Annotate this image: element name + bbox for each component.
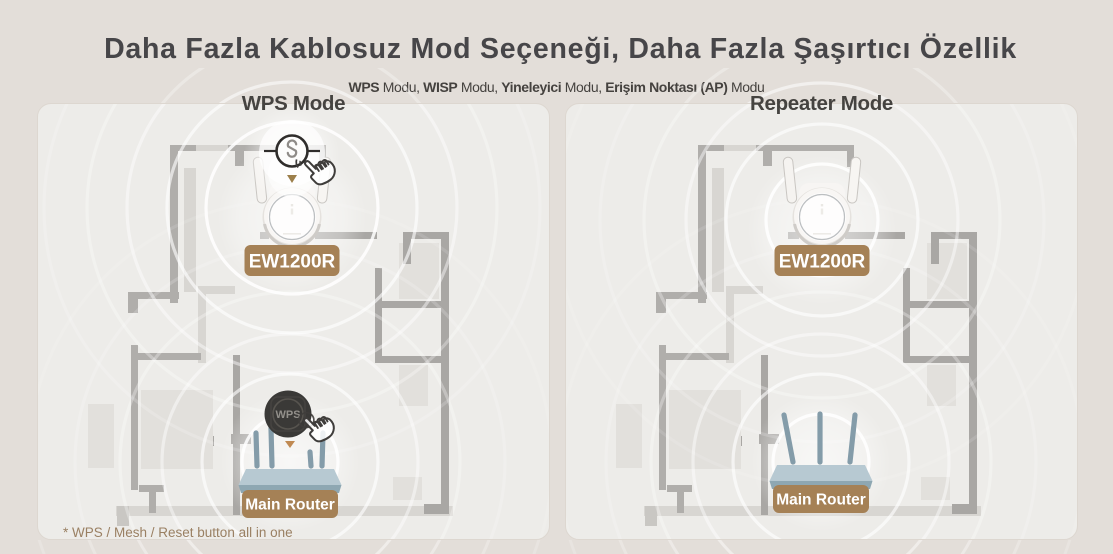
- svg-text:WPS: WPS: [275, 409, 300, 421]
- svg-text:Main Router: Main Router: [776, 492, 866, 509]
- svg-text:Main Router: Main Router: [245, 497, 335, 514]
- svg-text:EW1200R: EW1200R: [779, 251, 866, 272]
- svg-text:EW1200R: EW1200R: [249, 251, 336, 272]
